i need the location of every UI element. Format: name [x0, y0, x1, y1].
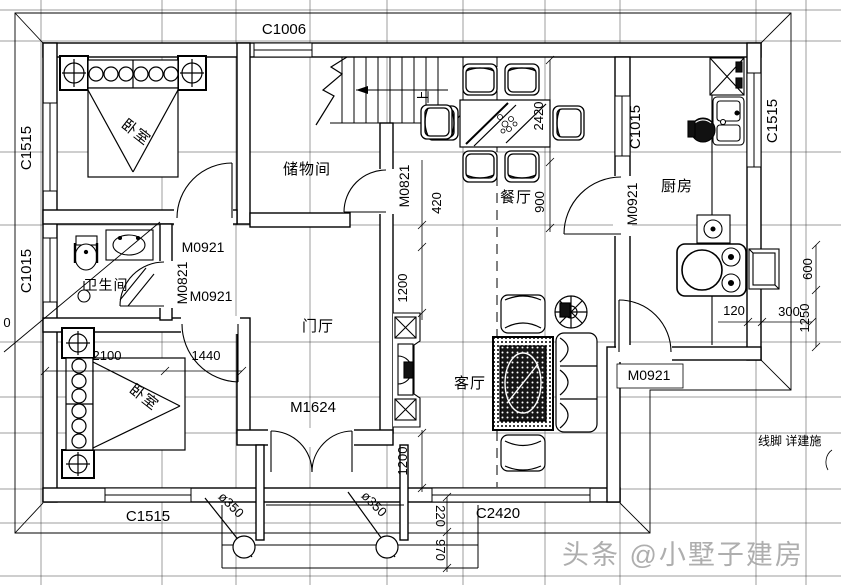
dim-1200-upper: 1200 [395, 274, 410, 303]
bed-2 [62, 328, 185, 478]
dim-2100: 2100 [93, 348, 122, 363]
tv-cabinet [393, 313, 420, 427]
door-tag-rear: M0921 [628, 367, 671, 383]
kitchen-fixtures [677, 57, 746, 345]
dim-1440: 1440 [192, 348, 221, 363]
room-label-dining: 餐厅 [500, 189, 532, 206]
window-tag-c2420: C2420 [476, 505, 520, 522]
door-kitchen [564, 177, 621, 234]
room-label-hall: 门厅 [302, 318, 334, 335]
room-label-living: 客厅 [454, 375, 486, 392]
ac-platform [749, 249, 779, 289]
dim-220: 220 [433, 505, 448, 527]
door-tag-kitchen: M0921 [624, 182, 640, 225]
door-tag-storage: M0821 [396, 164, 412, 207]
door-tag-bedroom2: M0921 [190, 288, 233, 304]
room-label-storage: 储物间 [283, 161, 331, 178]
dim-900: 900 [532, 191, 547, 213]
room-label-bathroom: 卫生间 [84, 277, 129, 293]
watermark: 头条 @小墅子建房 [562, 540, 804, 570]
dim-970: 970 [433, 539, 448, 561]
dim-420: 420 [429, 192, 444, 214]
dim-1250: 1250 [797, 304, 812, 333]
living-set [493, 295, 597, 471]
floor-plan: C1006 C1515 C1015 C1515 C2420 C1015 C151… [0, 0, 841, 585]
stairs-up-label: 上 [416, 90, 431, 103]
door-tag-bathroom: M0821 [174, 261, 190, 304]
dining-set [421, 64, 584, 182]
door-tag-entrance: M1624 [290, 399, 336, 416]
dim-600: 600 [800, 258, 815, 280]
molding-note: 线脚 详建施 [758, 433, 821, 448]
window-tag-c1015-left: C1015 [18, 249, 35, 293]
dim-partial-zero: 0 [3, 315, 10, 330]
window-tag-c1006: C1006 [262, 21, 306, 38]
window-tag-c1515-bottom: C1515 [126, 508, 170, 525]
bed-1 [60, 56, 206, 177]
room-label-kitchen: 厨房 [661, 178, 693, 195]
window-tag-c1015-kitchen: C1015 [627, 105, 644, 149]
floor-plan-svg: C1006 C1515 C1015 C1515 C2420 C1015 C151… [0, 0, 841, 585]
dim-2420: 2420 [531, 102, 546, 131]
window-tag-c1515-right: C1515 [764, 99, 781, 143]
door-tag-bedroom1: M0921 [182, 239, 225, 255]
dim-120: 120 [723, 303, 745, 318]
dim-1200-lower: 1200 [395, 447, 410, 476]
window-tag-c1515-left: C1515 [18, 126, 35, 170]
